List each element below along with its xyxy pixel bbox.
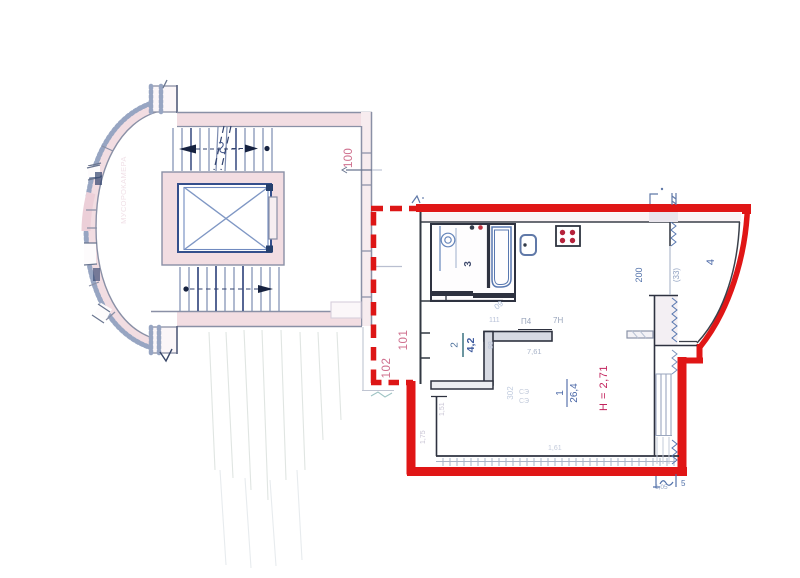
svg-text:302: 302 (506, 386, 515, 400)
svg-text:7Н: 7Н (553, 316, 563, 325)
svg-text:7,61: 7,61 (527, 347, 542, 356)
svg-text:101: 101 (398, 330, 410, 351)
svg-text:4,2: 4,2 (465, 338, 477, 353)
svg-text:2: 2 (450, 342, 461, 348)
svg-text:3: 3 (463, 261, 474, 267)
svg-text:МУСОРОКАМЕРА: МУСОРОКАМЕРА (119, 156, 128, 224)
svg-text:111: 111 (489, 317, 500, 324)
svg-text:1,75: 1,75 (420, 430, 427, 444)
svg-text:1,61: 1,61 (548, 445, 562, 452)
svg-text:88: 88 (488, 341, 495, 349)
svg-text:5: 5 (681, 479, 686, 488)
svg-text:4: 4 (705, 259, 717, 265)
svg-text:100: 100 (343, 148, 355, 168)
svg-text:СЭ: СЭ (519, 389, 529, 396)
svg-text:102: 102 (381, 358, 393, 379)
svg-text:1: 1 (555, 390, 566, 396)
svg-text:26,4: 26,4 (569, 383, 580, 403)
svg-text:(33): (33) (672, 268, 681, 283)
svg-text:200: 200 (634, 267, 644, 282)
svg-text:1,05: 1,05 (655, 484, 668, 491)
svg-text:Н = 2,71: Н = 2,71 (598, 365, 610, 411)
svg-text:1,51: 1,51 (439, 402, 446, 416)
svg-text:П4: П4 (521, 317, 532, 326)
svg-text:СЭ: СЭ (519, 398, 529, 405)
